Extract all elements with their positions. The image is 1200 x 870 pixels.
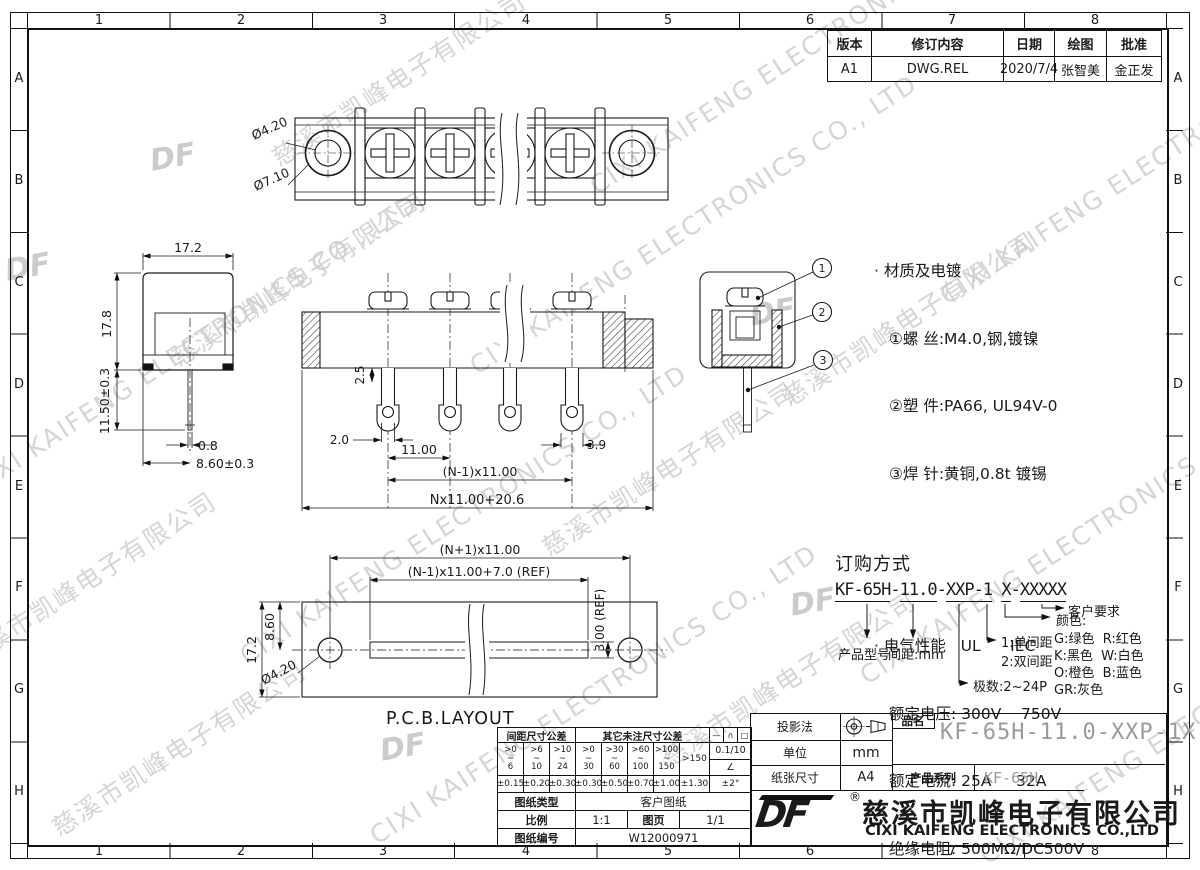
dim-label: 0.8 <box>198 438 218 453</box>
rev-cell: DWG.REL <box>871 56 1003 81</box>
tol-range: >0 ~ 6 <box>498 742 523 775</box>
series-label: 产品系列 <box>892 765 975 791</box>
tol-header-pitch: 间距尺寸公差 <box>498 728 575 742</box>
grid-col-label: 3 <box>377 844 389 859</box>
projection-symbol <box>840 713 893 741</box>
tol-value: ±1.00 <box>653 775 679 792</box>
rev-header: 绘图 <box>1054 31 1106 56</box>
ordering-label-double: 2:双间距 <box>1001 651 1053 670</box>
tol-value: ±0.30 <box>549 775 575 792</box>
grid-row-label: C <box>13 275 25 290</box>
grid-col-label: 3 <box>377 13 389 28</box>
scale-value: 1:1 <box>575 810 627 828</box>
scale-label: 比例 <box>498 810 575 828</box>
angle-symbol: ∠ <box>710 759 751 776</box>
dim-label: 8.60±0.3 <box>196 456 254 471</box>
dim-label: Ø7.10 <box>251 165 292 194</box>
top-ticks <box>27 13 1167 28</box>
grid-row-label: D <box>13 377 25 392</box>
grid-col-label: 7 <box>946 13 958 28</box>
code-poles: XXP-1 <box>946 580 992 602</box>
pcb-layout-title: P.C.B.LAYOUT <box>386 709 515 729</box>
callout-number: 1 <box>819 262 826 275</box>
grid-col-label: 6 <box>804 13 816 28</box>
grid-row-label: H <box>13 784 25 799</box>
grid-col-label: 8 <box>1089 13 1101 28</box>
pcb-geometry <box>292 602 667 697</box>
tol-range: >150 <box>679 742 709 775</box>
dim-label: Ø4.20 <box>258 657 298 688</box>
dim-label: 11.50±0.3 <box>97 368 112 434</box>
ordering-label-pitch: 间距:mm <box>888 644 944 663</box>
dim-label: 17.2 <box>244 636 259 664</box>
dim-label: 17.2 <box>174 240 202 255</box>
grid-row-label: A <box>1172 71 1184 86</box>
callout-number: 3 <box>820 354 827 367</box>
tol-value: ±0.70 <box>627 775 653 792</box>
grid-row-label: G <box>13 682 25 697</box>
ordering-label-single: 1:单间距 <box>1001 632 1053 651</box>
code-sep: - <box>890 580 899 600</box>
spec-title-material: · 材质及电镀 <box>874 260 1174 283</box>
tol-header-other: 其它未注尺寸公差 <box>575 728 709 742</box>
page-value: 1/1 <box>679 810 751 828</box>
tol-range: >100 ~ 150 <box>653 742 679 775</box>
left-ticks <box>10 28 27 844</box>
tolerance-table: 间距尺寸公差 其它未注尺寸公差 —∩□ >0 ~ 6 >6 ~ 10 >10 ~… <box>497 727 752 847</box>
dim-label: 8.60 <box>262 613 277 641</box>
grid-col-label: 2 <box>235 13 247 28</box>
rev-header: 日期 <box>1003 31 1054 56</box>
dim-label: Ø4.20 <box>249 114 290 143</box>
code-sep <box>992 580 1001 600</box>
tol-symbols: —∩□ <box>709 728 751 742</box>
paper-size-label: 纸张尺寸 <box>750 765 841 791</box>
dim-label: (N+1)x11.00 <box>440 542 521 557</box>
tol-flat-angle: 0.1/10∠ <box>709 742 751 775</box>
first-angle-icon <box>840 713 892 740</box>
section-view-drawing: 2.5 2.0 11.00 (N-1)x11.00 Nx11.00+20.6 3… <box>285 255 680 520</box>
grid-col-label: 5 <box>662 13 674 28</box>
tol-value: ±0.20 <box>523 775 549 792</box>
dim-label: 17.8 <box>99 310 114 338</box>
part-name-label: 品名 <box>892 713 935 729</box>
ordering-title: 订购方式 <box>835 550 911 576</box>
dim-label: 11.00 <box>401 442 437 457</box>
grid-col-label: 1 <box>93 13 105 28</box>
rev-cell: A1 <box>828 56 871 81</box>
doc-no-label: 图纸编号 <box>498 828 575 846</box>
side-view-dimensions <box>114 253 233 466</box>
unit-value: mm <box>840 740 893 766</box>
spec-item: ③焊 针:黄铜,0.8t 镀锡 <box>889 463 1174 486</box>
rev-cell: 2020/7/4 <box>1003 56 1054 81</box>
paper-size-value: A4 <box>840 765 893 791</box>
series-value: KF-65H <box>974 765 1084 791</box>
ordering-code: KF-65H-11.0-XXP-1 X-XXXXX <box>835 580 1066 600</box>
code-sep: - <box>1011 580 1020 600</box>
registered-mark-icon: ® <box>849 790 861 804</box>
projection-label: 投影法 <box>750 713 841 741</box>
symbol-straightness: — <box>710 728 723 742</box>
part-name-value: KF-65H-11.0-XXP-1X <box>940 720 1162 745</box>
grid-col-label: 1 <box>93 844 105 859</box>
tol-value: ±1.30 <box>679 775 709 792</box>
dim-label: 2.0 <box>330 433 349 447</box>
ordering-label-poles: 极数:2~24P <box>973 676 1047 695</box>
code-color: X <box>1001 580 1010 602</box>
dim-label: Nx11.00+20.6 <box>430 493 524 508</box>
tol-value: ±0.15 <box>498 775 523 792</box>
top-view-drawing: Ø4.20 Ø7.10 <box>250 95 680 210</box>
dim-label: (N-1)x11.00 <box>443 464 518 479</box>
dim-label: 3.9 <box>587 438 606 452</box>
tol-angle-value: ±2° <box>709 775 751 792</box>
rev-cell: 张智美 <box>1054 56 1106 81</box>
tol-range: >60 ~ 100 <box>627 742 653 775</box>
tol-range: >0 ~ 30 <box>575 742 601 775</box>
ordering-label-model: 产品型号 <box>838 644 890 663</box>
rev-header: 修订内容 <box>871 31 1003 56</box>
code-custom: XXXXX <box>1020 580 1066 602</box>
tol-value: ±0.50 <box>601 775 627 792</box>
dim-label: 3.00 (REF) <box>593 589 607 652</box>
tol-range: >10 ~ 24 <box>549 742 575 775</box>
flatness-tol: 0.1/10 <box>710 743 751 759</box>
drawing-sheet: 慈溪市凯峰电子有限公司 CIXI KAIFENG ELECTRONICS CO.… <box>0 0 1200 870</box>
rev-header: 批准 <box>1106 31 1161 56</box>
rev-cell: 金正发 <box>1106 56 1161 81</box>
ordering-label-custom: 客户要求 <box>1068 601 1120 620</box>
detail-view-geometry <box>700 272 795 432</box>
detail-callouts <box>746 259 832 392</box>
tol-value: ±0.30 <box>575 775 601 792</box>
tol-range: >6 ~ 10 <box>523 742 549 775</box>
symbol-profile: ∩ <box>723 728 737 742</box>
code-model: KF-65H <box>835 580 890 602</box>
company-name-en: CIXI KAIFENG ELECTRONICS CO.,LTD <box>862 823 1162 839</box>
page-label: 图页 <box>627 810 679 828</box>
grid-row-label: F <box>13 580 25 595</box>
ordering-color-option: GR:灰色 <box>1054 679 1103 698</box>
unit-label: 单位 <box>750 740 841 766</box>
grid-row-label: E <box>13 479 25 494</box>
grid-col-label: 4 <box>520 13 532 28</box>
top-view-geometry <box>286 108 668 207</box>
code-sep: - <box>937 580 946 600</box>
doc-type-value: 客户图纸 <box>575 792 751 810</box>
rev-header: 版本 <box>828 31 871 56</box>
doc-no-value: W12000971 <box>575 828 751 846</box>
symbol-flatness: □ <box>737 728 751 742</box>
dim-label: 2.5 <box>353 365 367 384</box>
grid-row-label: A <box>13 71 25 86</box>
grid-col-label: 2 <box>235 844 247 859</box>
company-logo: DF <box>753 797 808 833</box>
side-view-geometry <box>143 273 233 452</box>
tol-range: >30 ~ 60 <box>601 742 627 775</box>
code-pitch: 11.0 <box>900 580 937 602</box>
callout-number: 2 <box>819 306 826 319</box>
spec-item: ②塑 件:PA66, UL94V-0 <box>889 395 1174 418</box>
revision-table: 版本 修订内容 日期 绘图 批准 A1 DWG.REL 2020/7/4 张智美… <box>827 30 1162 82</box>
detail-view-drawing: 1 2 3 <box>690 255 845 455</box>
doc-type-label: 图纸类型 <box>498 792 575 810</box>
dim-label: (N-1)x11.00+7.0 (REF) <box>408 564 551 579</box>
grid-row-label: B <box>13 173 25 188</box>
spec-item: ①螺 丝:M4.0,钢,镀镍 <box>889 328 1174 351</box>
